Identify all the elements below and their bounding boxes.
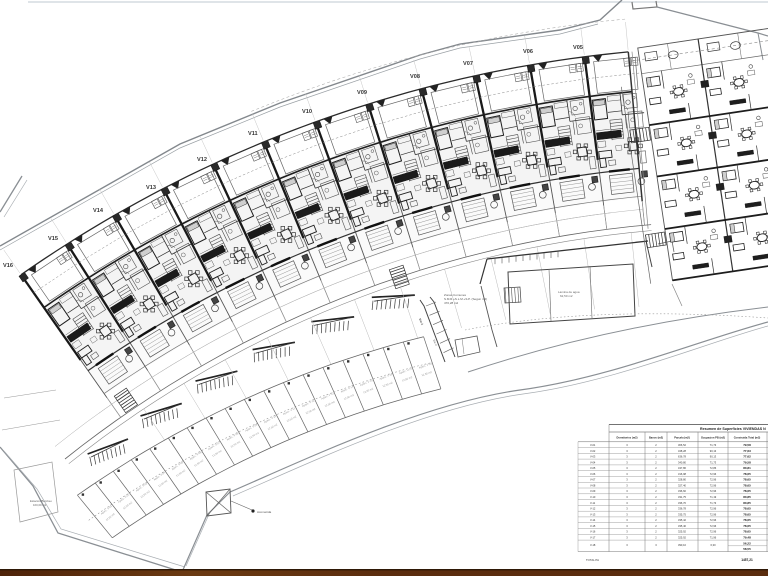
- svg-text:331,75: 331,75: [678, 495, 686, 499]
- svg-text:78,65: 78,65: [743, 483, 751, 487]
- svg-text:78,65: 78,65: [743, 478, 751, 482]
- svg-text:325,92: 325,92: [678, 536, 686, 540]
- svg-text:V-04: V-04: [590, 460, 596, 464]
- svg-text:V14: V14: [93, 208, 104, 214]
- svg-text:77,62: 77,62: [743, 455, 751, 459]
- svg-text:80,85: 80,85: [743, 495, 751, 499]
- svg-text:V-15: V-15: [590, 524, 596, 528]
- svg-text:V-01: V-01: [590, 443, 596, 447]
- svg-text:TOTAL PA: TOTAL PA: [586, 558, 599, 562]
- svg-text:71,73: 71,73: [710, 501, 717, 505]
- svg-text:72,96: 72,96: [710, 489, 717, 493]
- svg-text:V-08: V-08: [590, 483, 596, 487]
- svg-text:72,96: 72,96: [710, 507, 717, 511]
- svg-text:77,63: 77,63: [743, 449, 751, 453]
- svg-text:78,65: 78,65: [743, 489, 751, 493]
- svg-text:62,50 m2: 62,50 m2: [560, 294, 573, 298]
- svg-text:V06: V06: [523, 49, 533, 55]
- svg-text:78,65: 78,65: [743, 472, 751, 476]
- svg-text:78,65: 78,65: [743, 524, 751, 528]
- svg-text:78,65: 78,65: [743, 530, 751, 534]
- svg-text:71,73: 71,73: [710, 443, 717, 447]
- svg-text:327,40: 327,40: [678, 483, 686, 487]
- svg-text:72,96: 72,96: [710, 478, 717, 482]
- svg-text:78,65: 78,65: [743, 507, 751, 511]
- svg-text:6,30: 6,30: [710, 543, 716, 547]
- svg-text:80,81: 80,81: [743, 466, 751, 470]
- svg-text:V09: V09: [357, 90, 367, 96]
- svg-text:V-02: V-02: [590, 449, 596, 453]
- svg-text:72,96: 72,96: [710, 472, 717, 476]
- svg-text:V07: V07: [463, 61, 473, 67]
- svg-text:336,70: 336,70: [678, 501, 686, 505]
- svg-text:336,60: 336,60: [678, 489, 686, 493]
- svg-text:71,73: 71,73: [710, 460, 717, 464]
- svg-text:V08: V08: [410, 74, 420, 80]
- svg-text:72,96: 72,96: [710, 524, 717, 528]
- svg-text:V-16: V-16: [590, 530, 596, 534]
- svg-text:336,78: 336,78: [678, 507, 686, 511]
- svg-text:306,52: 306,52: [678, 443, 686, 447]
- svg-text:437,86: 437,86: [678, 466, 686, 470]
- svg-text:Ocupacion PB (m2): Ocupacion PB (m2): [701, 436, 725, 440]
- svg-text:316,98: 316,98: [678, 472, 686, 476]
- svg-text:80,85: 80,85: [743, 501, 751, 505]
- svg-text:V13: V13: [146, 185, 156, 191]
- svg-text:348,28: 348,28: [678, 449, 686, 453]
- svg-text:72,86: 72,86: [710, 466, 717, 470]
- svg-text:Dormitorios (m2): Dormitorios (m2): [617, 436, 638, 440]
- svg-text:Parcela (m2): Parcela (m2): [674, 436, 690, 440]
- svg-text:72,96: 72,96: [710, 483, 717, 487]
- svg-text:Banos (m2): Banos (m2): [649, 436, 663, 440]
- svg-text:V12: V12: [197, 157, 207, 163]
- svg-text:V10: V10: [302, 109, 312, 115]
- svg-text:90,13: 90,13: [710, 449, 717, 453]
- svg-text:470,28 m2: 470,28 m2: [444, 301, 459, 305]
- svg-text:V-11: V-11: [590, 501, 596, 505]
- svg-text:V-18: V-18: [590, 543, 596, 547]
- svg-text:V11: V11: [248, 131, 258, 137]
- svg-text:V15: V15: [48, 236, 58, 242]
- svg-text:1457,21: 1457,21: [741, 558, 753, 562]
- svg-text:340,80: 340,80: [678, 460, 686, 464]
- svg-text:V-05: V-05: [590, 466, 596, 470]
- svg-text:56,22: 56,22: [743, 541, 751, 545]
- svg-text:328,80: 328,80: [678, 478, 686, 482]
- svg-text:72,96: 72,96: [710, 518, 717, 522]
- svg-text:V05: V05: [573, 45, 583, 51]
- svg-text:Acometida: Acometida: [257, 510, 272, 514]
- svg-text:78,65: 78,65: [743, 512, 751, 516]
- svg-text:390,10: 390,10: [678, 543, 686, 547]
- svg-text:V-09: V-09: [590, 489, 596, 493]
- svg-text:V-06: V-06: [590, 472, 596, 476]
- svg-text:90,13: 90,13: [710, 455, 717, 459]
- svg-text:V-10: V-10: [590, 495, 596, 499]
- svg-text:72,96: 72,96: [710, 530, 717, 534]
- svg-text:325,92: 325,92: [678, 530, 686, 534]
- svg-text:71,96: 71,96: [710, 536, 717, 540]
- svg-text:160,00 m2: 160,00 m2: [33, 503, 47, 507]
- svg-text:Construida Total (m2): Construida Total (m2): [734, 436, 761, 440]
- svg-text:636,78: 636,78: [678, 455, 686, 459]
- svg-text:335,75: 335,75: [678, 512, 686, 516]
- svg-text:79,58: 79,58: [743, 443, 751, 447]
- svg-text:71,19: 71,19: [710, 495, 717, 499]
- svg-text:V-17: V-17: [590, 536, 596, 540]
- svg-text:335,40: 335,40: [678, 524, 686, 528]
- svg-text:Resumen de Superficies VIVIEND: Resumen de Superficies VIVIENDAS N: [700, 427, 766, 431]
- svg-text:V-14: V-14: [590, 518, 596, 522]
- svg-text:78,65: 78,65: [743, 518, 751, 522]
- svg-text:79,48: 79,48: [743, 536, 751, 540]
- svg-text:58,55: 58,55: [743, 547, 751, 551]
- svg-text:72,96: 72,96: [710, 512, 717, 516]
- svg-text:V-12: V-12: [590, 507, 596, 511]
- svg-text:335,42: 335,42: [678, 518, 686, 522]
- svg-text:V-07: V-07: [590, 478, 596, 482]
- svg-text:V16: V16: [3, 263, 13, 269]
- svg-text:V-13: V-13: [590, 512, 596, 516]
- svg-text:79,58: 79,58: [743, 460, 751, 464]
- svg-text:V-03: V-03: [590, 455, 596, 459]
